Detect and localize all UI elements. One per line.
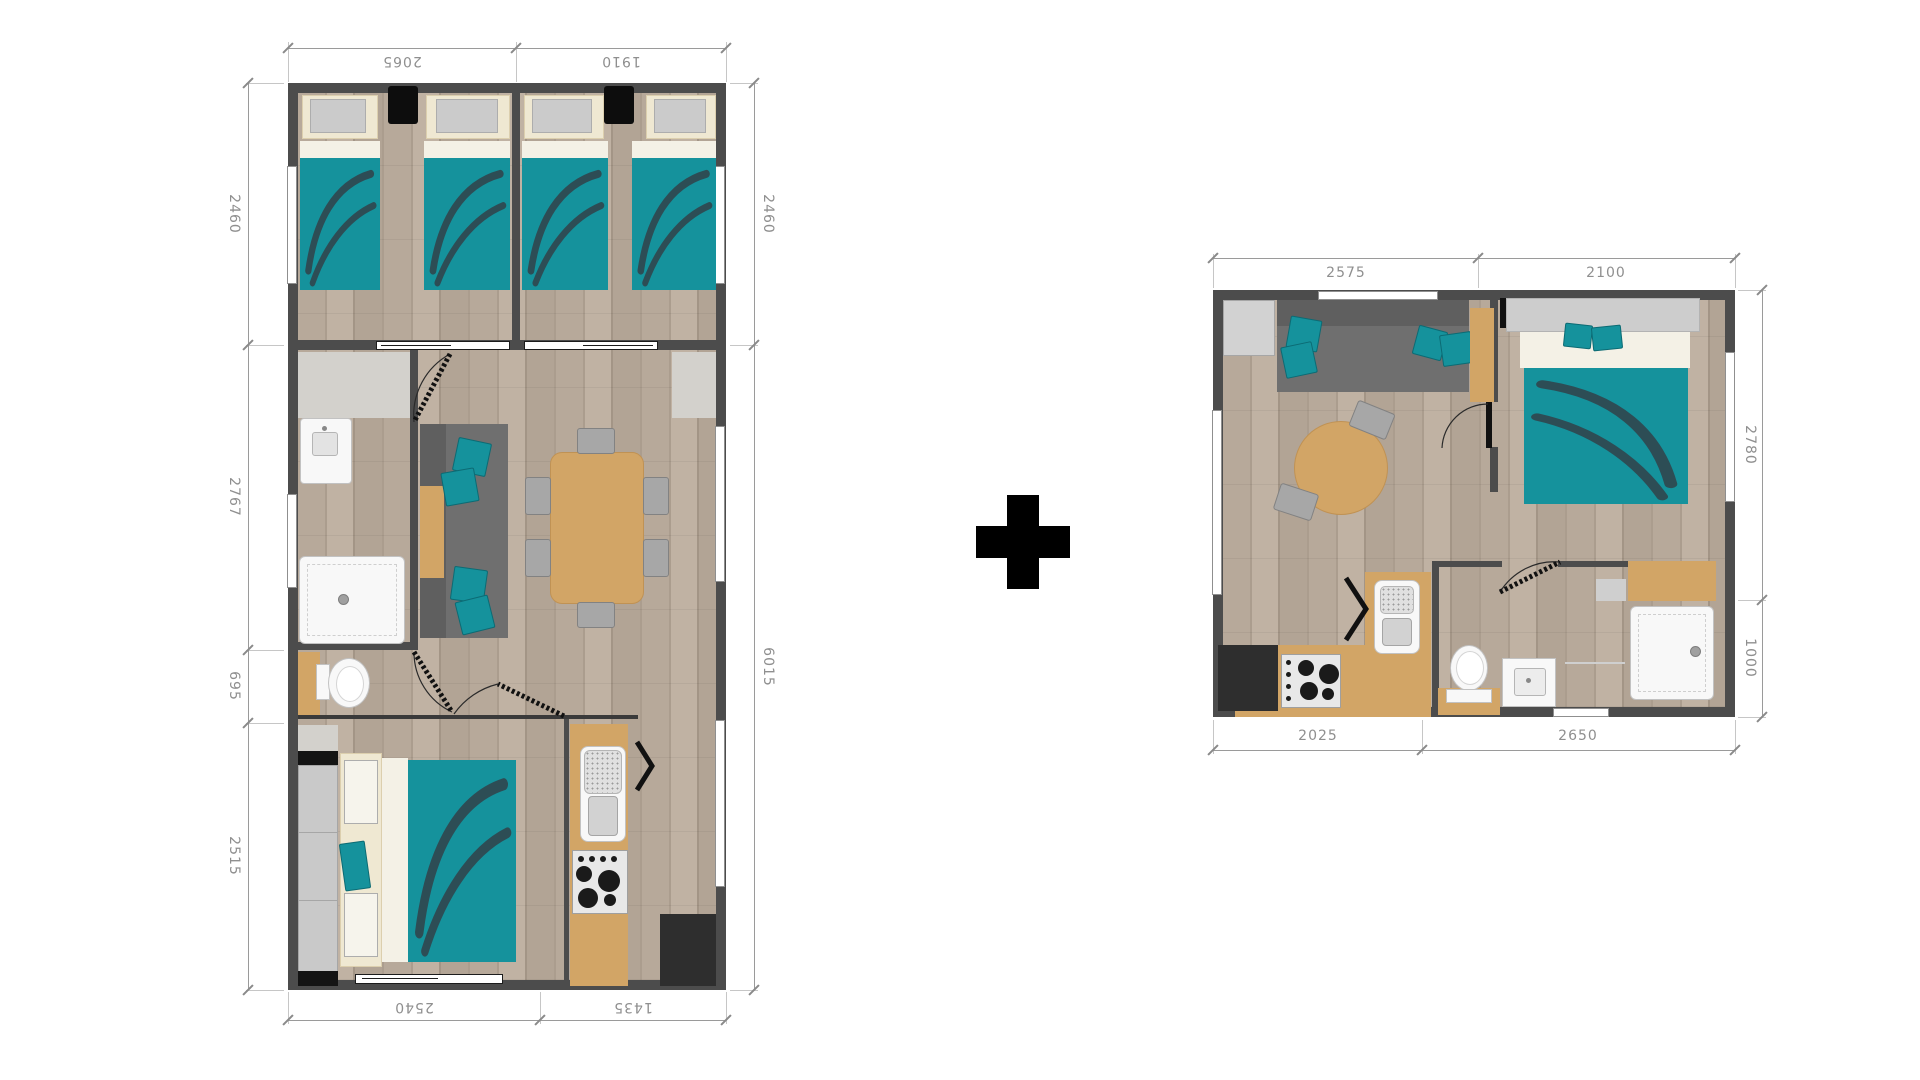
dimension-line-top [288,48,726,49]
bed-leaf-motif [1524,368,1688,504]
dimension-line-right [754,83,755,990]
dimension-line-bottom [1213,750,1735,751]
sofa-pillow [1412,325,1449,362]
bed-pillow [1591,324,1623,351]
dining-chair [1273,483,1320,522]
bathroom-top-wall-left [1432,561,1502,567]
extension-line [1478,254,1479,288]
kitchen-sink [1374,580,1420,654]
stove-burner [576,866,592,882]
corner-shelf [1223,300,1275,356]
stove-knob [600,856,606,862]
bedroom2-window [715,166,725,284]
stove-knob [1286,684,1291,689]
dim-label: 2767 [226,477,242,517]
wardrobe-block [1500,298,1512,328]
bed-leaf-motif [300,158,380,290]
bedroom1-window [287,166,297,284]
sheet-fold [300,141,380,158]
pillow [344,760,378,824]
dim-label: 2460 [760,194,776,234]
wardrobe [298,765,338,973]
stove-burner [1319,664,1339,684]
sheet-fold [382,758,408,962]
shower-tray-inner [1638,614,1706,692]
pillow [310,99,366,133]
extension-line [246,723,284,724]
sofa-pillow [1285,315,1322,352]
bedroom-door-leaf [1486,402,1492,448]
sheet-fold [632,141,716,158]
vanity-bowl [1514,668,1546,696]
corner-counter [660,914,716,986]
toilet-bowl [1450,645,1488,691]
extension-line [246,83,284,84]
floor-plan-composition: 2065 1910 2540 1435 2460 2767 695 2515 [0,0,1920,1080]
bed-sheet [1520,332,1690,368]
dimension-tick [1472,252,1483,263]
dimension-tick [1416,744,1427,755]
bathroom-top-wall-right [1558,561,1628,567]
stove-knob [589,856,595,862]
vanity-faucet [1526,678,1531,683]
wardrobe-shelf-line [299,832,337,833]
dim-label: 2100 [1586,265,1626,281]
bed-pillow [1563,323,1593,350]
dimension-tick [1207,744,1218,755]
dim-label: 2540 [394,999,434,1015]
plus-vertical-bar [1007,495,1039,589]
dim-label: 2780 [1742,425,1758,465]
sink-draining-board [1380,586,1414,614]
extension-line [246,345,284,346]
dimension-line-bottom [288,1020,726,1021]
towel-bar [1565,662,1625,664]
dim-label: 1910 [601,53,641,69]
stove-burner [1322,688,1334,700]
extension-line [246,990,284,991]
toilet-seat [1456,651,1484,685]
wardrobe-cap [298,971,338,986]
bed-leaf-motif [408,760,516,962]
bathroom-window [287,494,297,588]
bathroom-cabinet [1628,561,1716,601]
extension-line [1213,720,1214,754]
bed-headboard [1506,298,1700,332]
bathroom-left-wall [1432,561,1439,707]
toilet-base-cabinet [1438,688,1500,715]
bedroom-partition-lower [1490,447,1498,492]
wardrobe-shelf-line [299,900,337,901]
sofa-pillow [440,467,479,506]
sofa-side-table [420,486,444,578]
dining-table [550,452,644,604]
dim-label: 695 [226,671,242,701]
entrance-door [446,648,570,722]
extension-line [1213,254,1214,288]
living-corner-tile [672,352,716,418]
corner-counter [1218,645,1278,711]
bathroom-tile [298,352,410,418]
extension-line [1738,290,1766,291]
sink-basin [1382,618,1412,646]
pillow [344,893,378,957]
bedrooms-divider-wall [512,93,520,350]
top-window-sliding-bar [1324,300,1448,307]
stove-knob [1286,660,1291,665]
wardrobe-block [1686,298,1700,328]
dim-label: 2460 [226,194,242,234]
plus-separator: + [960,480,1090,610]
sheet-fold [424,141,510,158]
sofa-backrest [1277,300,1469,326]
bed-leaf-motif [632,158,716,290]
kitchen-counter-vertical [1365,572,1431,717]
kitchen-fold-symbol [634,740,656,792]
dimension-tick [1729,252,1740,263]
sofa-side-table [1470,308,1494,402]
stove-knob [578,856,584,862]
shower-drain [1690,646,1701,657]
round-table [1294,421,1388,515]
dim-label: 6015 [760,647,776,687]
extension-line [1735,720,1736,754]
toilet-tank [1446,689,1492,703]
double-bed [1524,368,1688,504]
dim-label: 2065 [382,53,422,69]
dim-label: 1000 [1742,638,1758,678]
entry-door [1494,552,1572,600]
sink-basin [588,796,618,836]
dimension-tick [1207,252,1218,263]
pillow [532,99,592,133]
right-plan-floor [1223,300,1725,707]
living-window [715,426,725,582]
stove-burner [1298,660,1314,676]
stove-burner [598,870,620,892]
nightstand [388,86,418,124]
left-wall-window [1212,410,1222,595]
bed-leaf-motif [522,158,608,290]
dim-label: 2575 [1326,265,1366,281]
extension-line [1422,720,1423,754]
dining-chair [577,602,615,628]
pillow [654,99,706,133]
shower-tray-inner [307,564,397,636]
dining-chair [643,477,669,515]
extension-line [1735,254,1736,288]
sheet-fold [522,141,608,158]
dimension-tick [1756,284,1767,295]
dimension-tick [1756,594,1767,605]
dining-chair [525,539,551,577]
sink-draining-board [584,750,622,794]
stove-knob [1286,696,1291,701]
stove-burner [578,888,598,908]
dimension-tick [1729,744,1740,755]
bed-leaf-motif [424,158,510,290]
nightstand [604,86,634,124]
dining-chair [1348,400,1396,441]
dining-chair [525,477,551,515]
closet-tile [298,725,338,753]
dimension-line-left [248,83,249,990]
bedroom-partition-upper [1490,300,1498,402]
bedroom3-sliding-door [355,974,503,984]
sofa [1277,300,1469,392]
stove-knob [1286,672,1291,677]
sofa-pillow [1439,331,1475,367]
top-wall-window [1318,291,1438,300]
bedroom-door-swing [1438,400,1492,452]
right-wall-window [1725,352,1735,502]
stove-burner [1300,682,1318,700]
kitchen-wall [564,719,569,990]
dim-label: 2650 [1558,728,1598,744]
washbasin-faucet [322,426,327,431]
dining-chair [643,539,669,577]
bedroom2-sliding-door [524,341,658,350]
stove [1281,654,1341,708]
dim-label: 2515 [226,836,242,876]
dimension-line-top [1213,258,1735,259]
kitchen-fold-symbol [1342,576,1370,642]
bottom-wall-window [1553,708,1609,717]
dining-chair [577,428,615,454]
vanity-washbasin [1502,658,1556,707]
dimension-line-right [1762,290,1763,717]
shower-tray [1630,606,1714,700]
dimension-tick [1756,711,1767,722]
shower-drain [338,594,349,605]
right-plan-outer-wall [1213,290,1735,717]
living-door [406,348,470,428]
extension-line [246,650,284,651]
dim-label: 2025 [1298,728,1338,744]
kitchen-window [715,720,725,887]
toilet-seat [336,666,364,702]
washbasin-bowl [312,432,338,456]
stove-burner [604,894,616,906]
extension-line [1738,717,1766,718]
pillow [436,99,498,133]
dim-label: 1435 [613,999,653,1015]
stove-knob [611,856,617,862]
left-plan: 2065 1910 2540 1435 2460 2767 695 2515 [0,0,1100,1080]
bath-mat [1596,579,1626,601]
kitchen-counter-horizontal [1235,645,1365,717]
extension-line [1738,600,1766,601]
sofa-pillow [1280,341,1318,379]
